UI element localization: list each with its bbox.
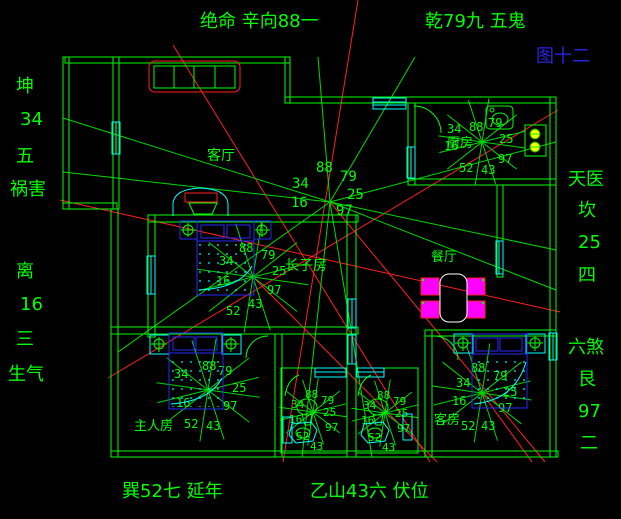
wall-top-right xyxy=(285,97,556,103)
annotation-er: 二 xyxy=(580,433,598,454)
dining-table-set xyxy=(421,274,485,322)
eldest-son-bed xyxy=(180,221,271,295)
bath2-chart-number-43: 43 xyxy=(382,441,395,454)
label-eldest-son-room: 长子房 xyxy=(285,258,327,274)
wall-dining-right xyxy=(497,185,503,277)
kitchen-chart-number-88: 88 xyxy=(469,120,483,134)
floorplan-canvas: 8879342516974352348879251697435288793425… xyxy=(0,0,621,519)
kitchen-stove xyxy=(525,125,546,156)
eldest-son-chart-number-79: 79 xyxy=(261,248,275,262)
house-number-16: 16 xyxy=(291,195,308,211)
bath2-chart-number-97: 97 xyxy=(397,422,410,435)
eldest-son-chart-number-52: 52 xyxy=(226,304,240,318)
kitchen-chart-number-79: 79 xyxy=(488,116,502,130)
guest-chart-number-34: 34 xyxy=(456,376,470,390)
guest-chart-number-52: 52 xyxy=(461,419,475,433)
label-guest-room: 客房 xyxy=(434,412,460,428)
window-bath1-top xyxy=(315,368,346,377)
bath1-chart-number-97: 97 xyxy=(325,421,338,434)
annotation-si: 四 xyxy=(578,265,596,286)
door-arc-kitchen xyxy=(414,106,441,133)
door-arc-master xyxy=(246,336,268,358)
kitchen-chart-number-52: 52 xyxy=(459,161,473,175)
annotation-bottom-right: 乙山43六 伏位 xyxy=(310,481,429,502)
master-chart-number-43: 43 xyxy=(206,419,220,433)
bath2-chart-number-16: 16 xyxy=(361,414,374,427)
wall-left-upper xyxy=(63,57,69,209)
annotation-kun: 坤 xyxy=(16,76,34,97)
wall-porch-bottom xyxy=(63,203,117,209)
kitchen-chart-number-34: 34 xyxy=(447,122,461,136)
label-living-room: 客厅 xyxy=(207,147,235,164)
wall-top-step xyxy=(285,57,290,103)
guest-chart-number-43: 43 xyxy=(481,419,495,433)
bath1-chart-number-25: 25 xyxy=(323,406,336,419)
master-chart-number-25: 25 xyxy=(232,381,246,395)
house-number-97: 97 xyxy=(336,203,353,219)
wall-left-lower xyxy=(111,209,118,457)
annotation-34: 34 xyxy=(20,109,43,130)
guest-chart-number-16: 16 xyxy=(452,394,466,408)
annotation-top-left: 绝命 辛向88一 xyxy=(200,11,319,32)
annotation-gen: 艮 xyxy=(578,369,596,390)
wall-guest-left xyxy=(425,330,432,457)
label-dining-room: 餐厅 xyxy=(431,249,457,265)
annotation-16: 16 xyxy=(20,294,43,315)
annotation-tianyi: 天医 xyxy=(568,169,604,190)
master-chart-number-97: 97 xyxy=(223,399,237,413)
tv-set xyxy=(173,188,228,216)
figure-number-label: 图十二 xyxy=(536,46,590,67)
house-number-25: 25 xyxy=(347,187,364,203)
kitchen-chart-number-25: 25 xyxy=(499,132,513,146)
label-kitchen: 厨房 xyxy=(447,135,473,151)
kitchen-chart-number-43: 43 xyxy=(481,163,495,177)
annotation-li: 离 xyxy=(16,261,34,282)
wall-kitchen-bottom xyxy=(408,179,556,185)
annotation-shengqi: 生气 xyxy=(8,364,44,385)
wall-right xyxy=(550,97,556,457)
annotation-wu: 五 xyxy=(16,146,34,167)
annotation-25: 25 xyxy=(578,232,601,253)
bath2-chart-number-34: 34 xyxy=(363,399,377,412)
eldest-son-chart-number-97: 97 xyxy=(267,283,281,297)
house-number-79: 79 xyxy=(340,169,357,185)
house-number-88: 88 xyxy=(316,160,333,176)
annotation-top-right: 乾79九 五鬼 xyxy=(425,11,526,32)
annotation-kan: 坎 xyxy=(578,200,596,221)
window-hall-upper xyxy=(348,299,356,328)
wall-guest-top xyxy=(425,330,556,336)
annotation-bottom-left: 巽52七 延年 xyxy=(122,481,223,502)
annotation-huohai: 祸害 xyxy=(10,179,46,200)
annotation-liusha: 六煞 xyxy=(568,337,604,358)
master-chart-number-52: 52 xyxy=(184,417,198,431)
annotation-san: 三 xyxy=(16,329,34,350)
annotation-97: 97 xyxy=(578,401,601,422)
wall-top-left xyxy=(65,57,290,63)
sofa xyxy=(149,61,240,92)
wall-bottom xyxy=(111,451,558,457)
eldest-son-chart-number-43: 43 xyxy=(248,297,262,311)
house-number-34: 34 xyxy=(292,176,309,192)
kitchen-chart-number-97: 97 xyxy=(498,152,512,166)
label-master-bedroom: 主人房 xyxy=(134,418,173,434)
